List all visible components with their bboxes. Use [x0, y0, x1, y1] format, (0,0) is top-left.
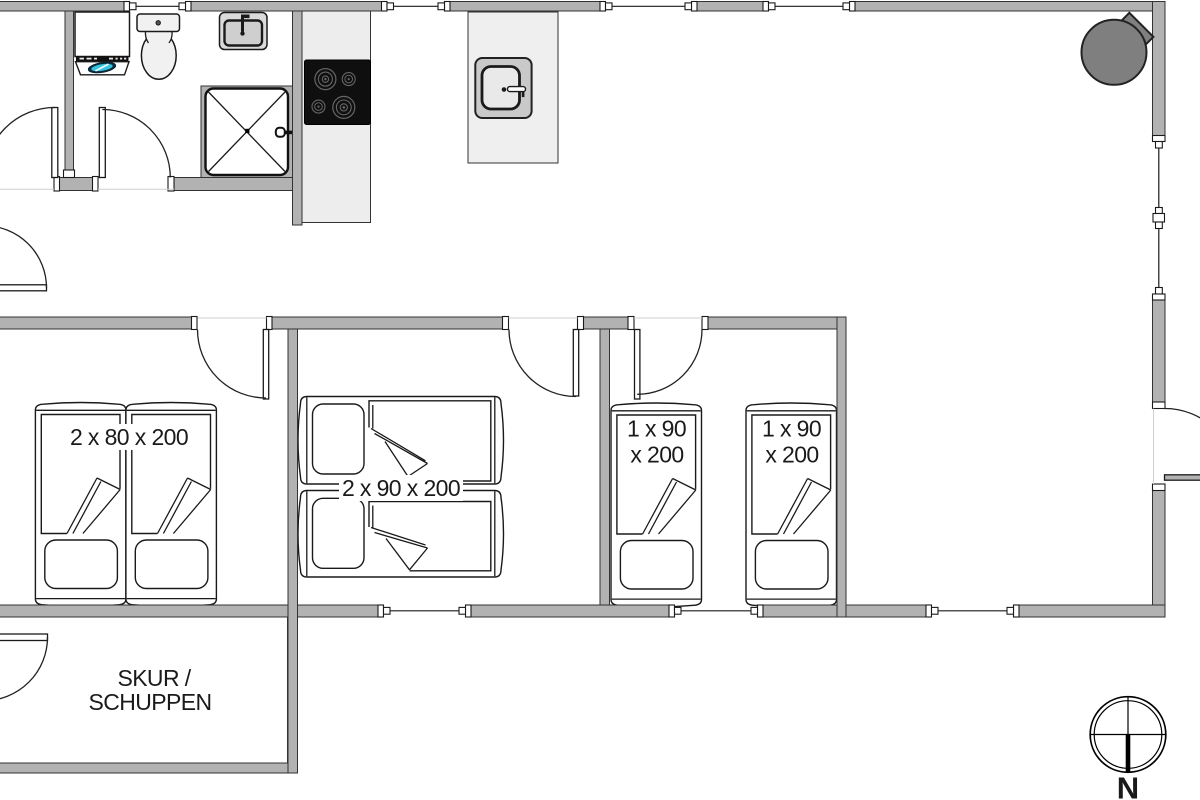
svg-text:x 200: x 200 — [630, 442, 683, 468]
svg-text:x 200: x 200 — [765, 442, 818, 468]
svg-text:1 x 90: 1 x 90 — [762, 416, 821, 442]
svg-text:1 x 90: 1 x 90 — [627, 416, 686, 442]
svg-text:SKUR /: SKUR / — [117, 665, 191, 691]
svg-text:2 x 90 x 200: 2 x 90 x 200 — [342, 475, 460, 501]
svg-text:SCHUPPEN: SCHUPPEN — [88, 689, 211, 715]
svg-text:2 x 80 x 200: 2 x 80 x 200 — [70, 424, 188, 450]
svg-text:N: N — [1117, 771, 1139, 800]
